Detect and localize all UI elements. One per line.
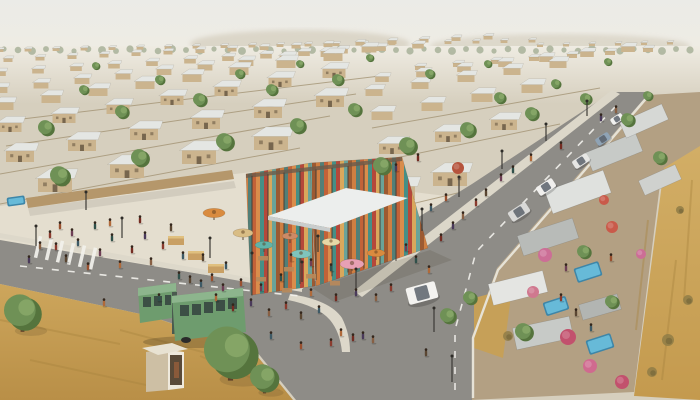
house-wall	[4, 58, 13, 62]
house-wall	[277, 60, 296, 68]
house-wall	[501, 40, 508, 43]
house-wall	[504, 68, 521, 75]
house-wall	[53, 48, 60, 51]
person	[462, 213, 464, 219]
person	[310, 260, 312, 266]
person	[232, 305, 234, 311]
house-door	[448, 178, 453, 186]
house-wall	[146, 61, 158, 66]
person	[280, 275, 282, 281]
house-door	[62, 118, 65, 123]
house-wall	[137, 47, 144, 50]
person	[162, 243, 164, 249]
person	[290, 255, 292, 261]
person	[600, 115, 602, 121]
house-wall	[362, 47, 377, 53]
person	[590, 325, 592, 331]
house-wall	[260, 54, 272, 59]
distant-tree	[393, 47, 399, 53]
person	[530, 155, 532, 161]
person	[610, 255, 612, 261]
house-window	[336, 99, 339, 102]
person	[300, 343, 302, 349]
house-wall	[589, 44, 595, 46]
person	[139, 217, 141, 223]
bus-window	[192, 304, 201, 315]
person	[39, 243, 41, 249]
bus-wheel	[181, 337, 191, 343]
person	[285, 303, 287, 309]
house-wall	[445, 41, 452, 44]
house-window	[150, 132, 153, 135]
person	[225, 263, 227, 269]
house-window	[15, 126, 18, 129]
house-wall	[260, 46, 269, 50]
house-window	[259, 140, 263, 144]
bus-window	[180, 305, 189, 316]
person	[512, 167, 514, 173]
bus-window	[165, 295, 171, 305]
person	[119, 262, 121, 268]
house-wall	[70, 66, 82, 71]
person	[390, 285, 392, 291]
house-wall	[116, 74, 131, 80]
distant-tree	[435, 47, 442, 54]
distant-tree	[673, 46, 679, 52]
person	[77, 240, 79, 246]
house-window	[26, 154, 29, 157]
person	[440, 235, 442, 241]
person	[352, 335, 354, 341]
person	[131, 247, 133, 253]
person	[222, 285, 224, 291]
person	[150, 259, 152, 265]
house-door	[125, 170, 130, 178]
house-window	[110, 108, 113, 111]
person	[71, 230, 73, 236]
house-window	[320, 99, 323, 102]
house-door	[502, 124, 506, 130]
house-wall	[643, 48, 653, 52]
house-wall	[75, 78, 90, 84]
person	[144, 233, 146, 239]
distant-tree	[155, 48, 162, 55]
house-window	[10, 154, 13, 157]
house-window	[454, 135, 457, 138]
house-wall	[473, 41, 480, 44]
house-wall	[621, 47, 635, 52]
person	[485, 190, 487, 196]
house-wall	[615, 43, 621, 45]
distant-tree	[491, 48, 496, 53]
person	[211, 275, 213, 281]
house-wall	[580, 52, 594, 57]
table	[284, 267, 294, 272]
house-wall	[324, 53, 343, 61]
distant-tree	[183, 47, 189, 53]
house-roof	[0, 97, 17, 102]
distant-tree	[463, 46, 469, 52]
person	[65, 256, 67, 262]
person	[372, 337, 374, 343]
house-wall	[529, 57, 539, 61]
person	[250, 300, 252, 306]
house-wall	[412, 44, 424, 49]
distant-tree	[505, 46, 512, 53]
house-door	[8, 127, 11, 132]
house-window	[207, 154, 211, 158]
house-wall	[228, 48, 237, 52]
house-door	[328, 101, 332, 107]
house-wall	[132, 52, 141, 56]
house-window	[196, 121, 199, 124]
house-wall	[34, 83, 49, 89]
house-wall	[32, 69, 44, 74]
house-door	[446, 136, 450, 142]
distant-tree	[686, 46, 693, 53]
person	[475, 200, 477, 206]
house-window	[164, 99, 167, 102]
house-wall	[422, 103, 443, 111]
table	[306, 274, 316, 279]
house-wall	[372, 112, 393, 120]
person	[330, 340, 332, 346]
house-window	[69, 117, 72, 120]
house-wall	[81, 48, 88, 51]
distant-tree	[15, 47, 22, 54]
person	[500, 175, 502, 181]
house-wall	[89, 88, 108, 96]
house-window	[2, 126, 5, 129]
house-wall	[100, 54, 109, 58]
house-wall	[42, 95, 61, 103]
house-door	[269, 142, 274, 150]
person	[425, 350, 427, 356]
house-roof	[0, 83, 10, 87]
distant-tree	[533, 48, 539, 54]
house-door	[224, 91, 227, 96]
house-window	[72, 143, 75, 146]
distant-tree	[476, 46, 483, 53]
person	[260, 285, 262, 291]
house-wall	[0, 49, 3, 52]
person	[87, 264, 89, 270]
house-wall	[375, 77, 389, 82]
table	[282, 288, 292, 293]
house-window	[438, 176, 442, 180]
house-window	[231, 90, 234, 93]
house-roof	[0, 68, 8, 71]
house-wall	[277, 44, 284, 47]
house-window	[187, 154, 191, 158]
house-wall	[605, 51, 615, 55]
person	[55, 244, 57, 250]
house-wall	[196, 49, 205, 53]
house-wall	[164, 51, 173, 55]
house-wall	[249, 45, 256, 48]
person	[415, 257, 417, 263]
house-door	[204, 123, 208, 129]
house-wall	[0, 87, 7, 93]
person	[340, 330, 342, 336]
house-wall	[484, 36, 493, 40]
distant-tree	[211, 46, 216, 51]
distant-tree	[43, 46, 49, 52]
person	[109, 220, 111, 226]
house-window	[439, 135, 442, 138]
person	[103, 300, 105, 306]
house-window	[326, 72, 329, 75]
house-wall	[136, 81, 155, 89]
person	[270, 333, 272, 339]
house-door	[53, 184, 58, 192]
distant-tree	[518, 46, 526, 54]
township-aerial-render	[0, 0, 700, 400]
house-window	[218, 90, 221, 93]
table	[330, 281, 340, 286]
house-wall	[222, 56, 234, 61]
house-wall	[366, 89, 383, 96]
house-window	[135, 168, 139, 172]
house-wall	[412, 82, 429, 89]
distant-tree	[351, 47, 356, 52]
house-wall	[324, 43, 333, 47]
bus-shelter	[142, 343, 188, 392]
person	[565, 265, 567, 271]
house-wall	[537, 45, 543, 47]
house-wall	[452, 37, 461, 41]
bus-window	[143, 297, 151, 307]
house-wall	[68, 55, 77, 59]
house-window	[383, 147, 386, 150]
distant-tree	[658, 47, 666, 55]
person	[99, 250, 101, 256]
house-wall	[388, 40, 397, 44]
house-window	[212, 121, 215, 124]
shelter-side	[146, 348, 168, 392]
person	[170, 225, 172, 231]
distant-tree	[448, 47, 456, 55]
person	[330, 265, 332, 271]
house-door	[390, 148, 394, 154]
house-door	[197, 156, 202, 164]
house-window	[274, 110, 277, 113]
person	[430, 205, 432, 211]
person	[158, 295, 160, 301]
house-window	[115, 168, 119, 172]
distant-tree	[561, 47, 566, 52]
person	[28, 257, 30, 263]
house-wall	[305, 44, 312, 47]
person	[268, 310, 270, 316]
person	[560, 143, 562, 149]
distant-tree	[546, 45, 553, 52]
house-wall	[221, 45, 228, 48]
house-wall	[522, 85, 543, 93]
house-wall	[292, 45, 301, 49]
house-window	[177, 99, 180, 102]
person	[240, 280, 242, 286]
house-wall	[333, 43, 340, 46]
person	[200, 281, 202, 287]
person	[428, 267, 430, 273]
person	[310, 290, 312, 296]
house-wall	[550, 61, 567, 68]
house-wall	[184, 59, 196, 64]
person	[318, 307, 320, 313]
table	[256, 277, 266, 282]
person	[202, 255, 204, 261]
house-door	[142, 134, 146, 140]
distant-tree	[238, 47, 246, 55]
house-wall	[0, 71, 6, 76]
house-window	[56, 117, 59, 120]
bus-window	[204, 302, 213, 313]
house-window	[279, 140, 283, 144]
house-window	[285, 81, 288, 84]
person	[452, 223, 454, 229]
person	[59, 223, 61, 229]
house-door	[170, 100, 173, 105]
house-wall	[563, 44, 569, 46]
house-window	[258, 110, 261, 113]
house-wall	[458, 75, 475, 82]
house-wall	[641, 43, 647, 45]
person	[182, 253, 184, 259]
house-wall	[183, 74, 202, 82]
house-window	[272, 81, 275, 84]
table	[258, 256, 268, 261]
person	[417, 155, 419, 161]
person	[362, 333, 364, 339]
person	[300, 313, 302, 319]
person	[560, 295, 562, 301]
house-window	[88, 143, 91, 146]
scene-canvas	[0, 0, 700, 400]
house-window	[43, 182, 47, 186]
house-window	[134, 132, 137, 135]
person	[215, 295, 217, 301]
person	[189, 277, 191, 283]
house-wall	[472, 94, 493, 102]
person	[355, 290, 357, 296]
person	[111, 235, 113, 241]
person	[615, 107, 617, 113]
house-wall	[298, 51, 310, 56]
person	[178, 273, 180, 279]
house-window	[495, 123, 498, 126]
person	[49, 232, 51, 238]
house-wall	[529, 40, 536, 43]
house-door	[278, 82, 281, 87]
house-roof	[0, 47, 5, 49]
house-wall	[36, 57, 45, 61]
house-window	[510, 123, 513, 126]
person	[575, 310, 577, 316]
house-door	[18, 156, 22, 162]
house-wall	[109, 47, 116, 50]
person	[405, 245, 407, 251]
person	[445, 195, 447, 201]
person	[94, 223, 96, 229]
shelter-person	[174, 362, 179, 378]
person	[335, 295, 337, 301]
house-window	[339, 72, 342, 75]
house-wall	[667, 42, 673, 44]
house-wall	[157, 69, 172, 75]
house-door	[266, 112, 270, 118]
person	[395, 165, 397, 171]
house-wall	[0, 102, 14, 110]
house-wall	[108, 64, 120, 69]
house-wall	[25, 49, 32, 52]
house-door	[80, 145, 84, 151]
person	[375, 295, 377, 301]
